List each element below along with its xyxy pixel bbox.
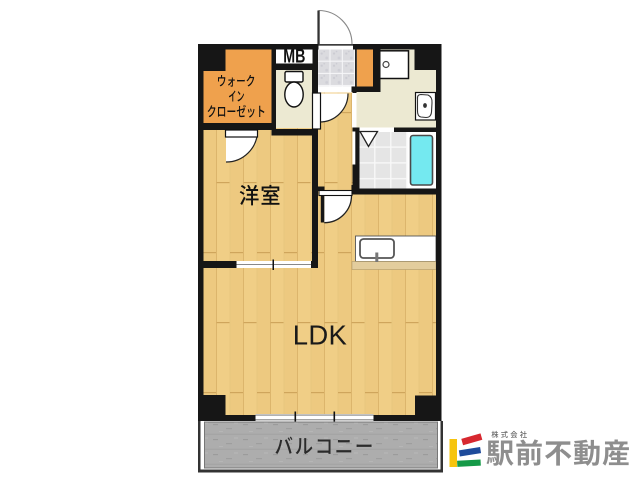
svg-text:MB: MB [283, 46, 305, 68]
svg-text:LDK: LDK [293, 320, 348, 351]
